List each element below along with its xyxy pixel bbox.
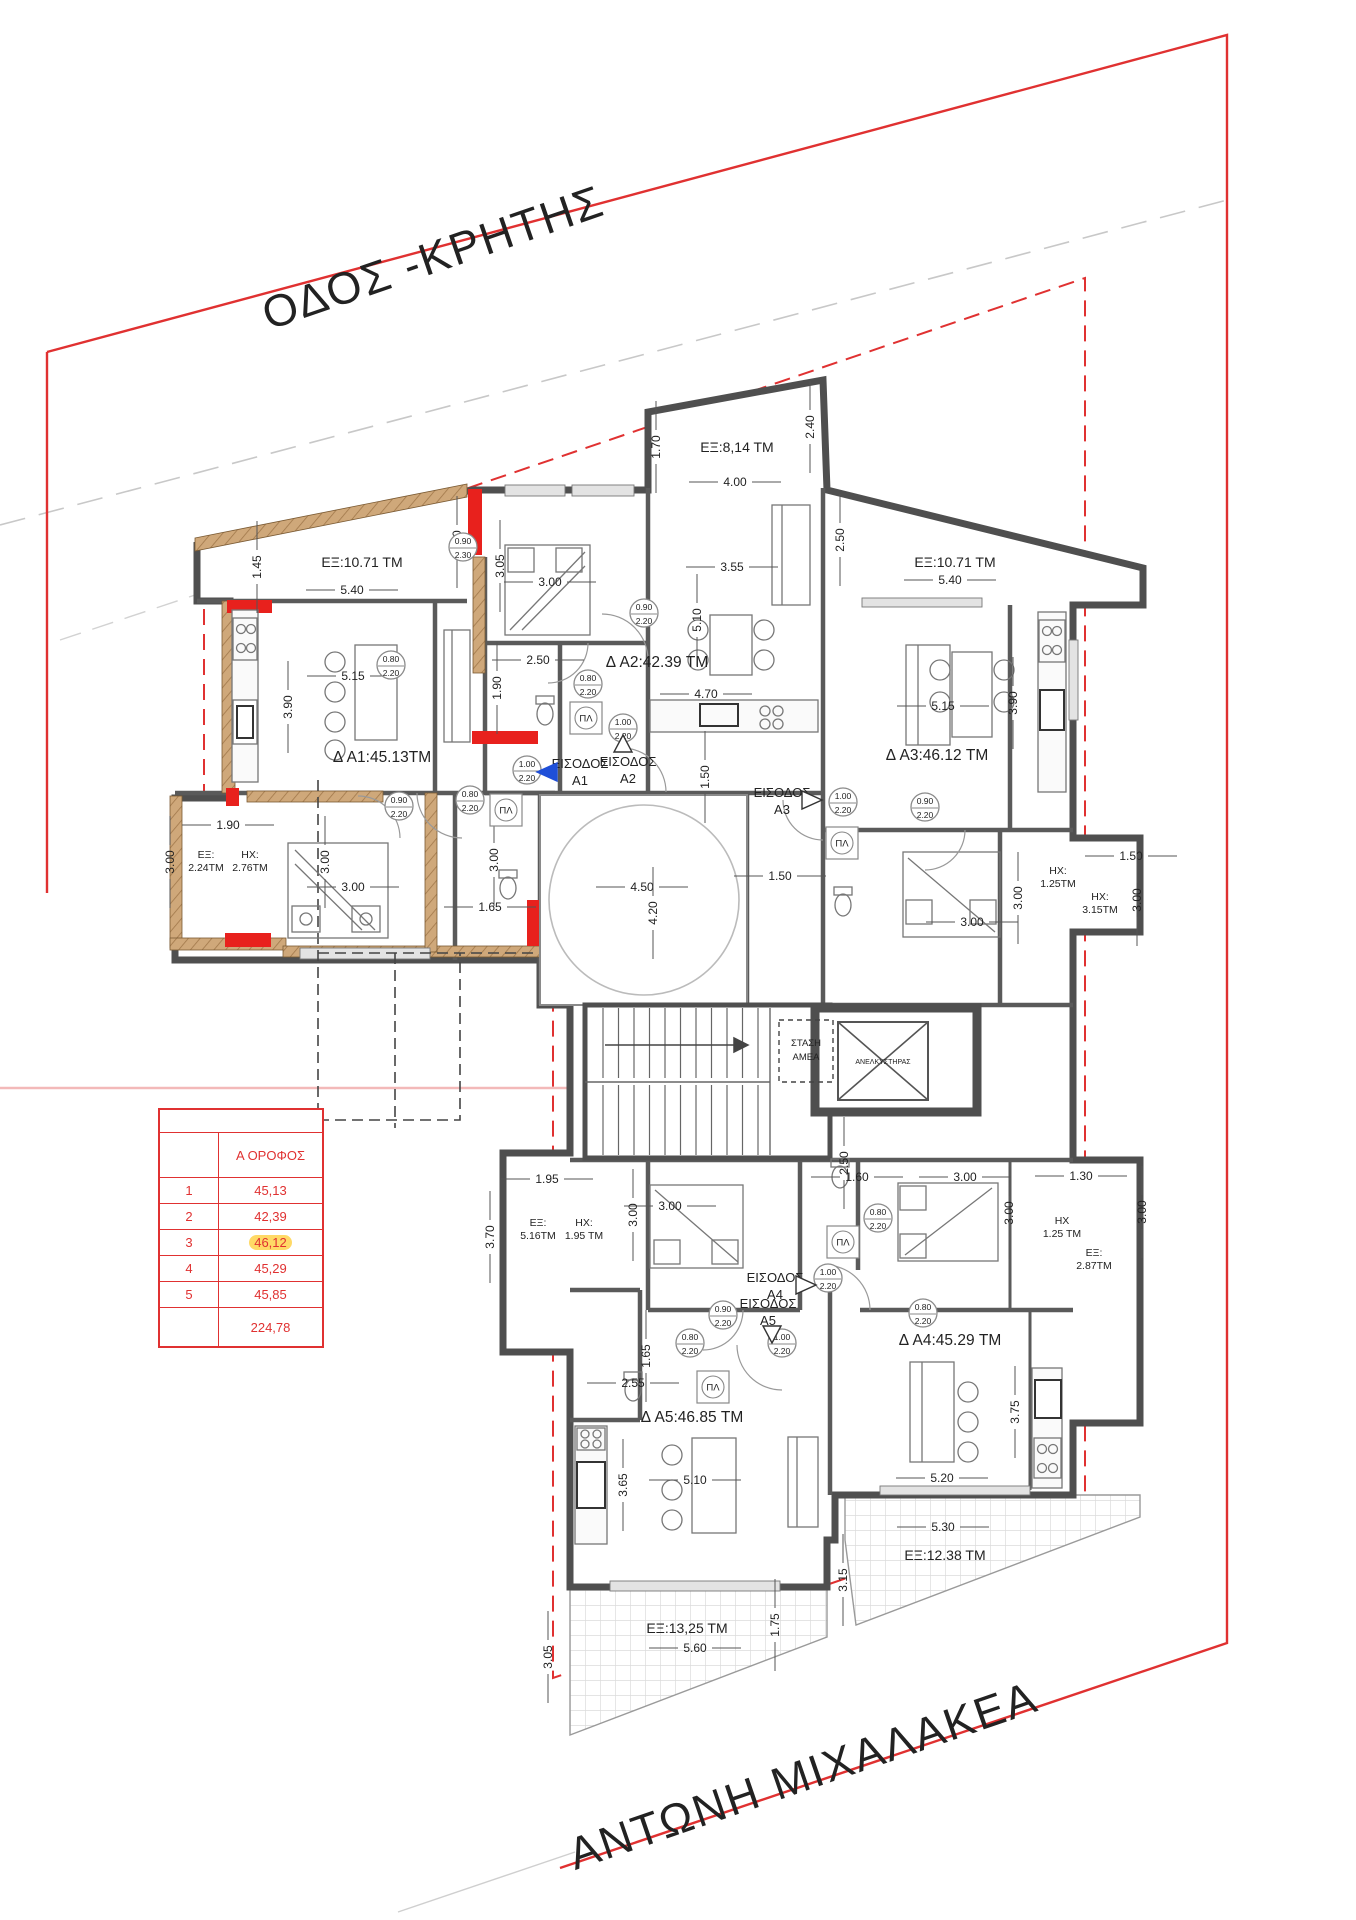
- door-height: 2.20: [774, 1346, 791, 1356]
- area-table-header-row: Α ΟΡΟΦΟΣ: [160, 1132, 322, 1177]
- balcony-area-label: ΕΞ:13,25 ΤΜ: [646, 1620, 727, 1636]
- area-value-highlighted: 46,12: [249, 1235, 292, 1250]
- total-empty-cell: [160, 1308, 218, 1346]
- door-height: 2.20: [820, 1281, 837, 1291]
- dimension-value: 3.00: [1002, 1201, 1016, 1225]
- door-size-tag: 0.802.20: [574, 670, 602, 698]
- dimension-value: 5.10: [683, 1473, 707, 1487]
- apartment-label: Δ A1:45.13ΤΜ: [333, 749, 431, 766]
- dimension-value: 5.15: [341, 669, 365, 683]
- washing-machine-tag: ΠΛ: [826, 827, 858, 859]
- door-height: 2.20: [462, 803, 479, 813]
- row-num: 4: [160, 1256, 218, 1281]
- dimension-value: 3.00: [626, 1203, 640, 1227]
- dimension-value: 1.50: [768, 869, 792, 883]
- dimension-value: 1.45: [250, 555, 264, 579]
- area-label-line2: 1.95 ΤΜ: [565, 1230, 603, 1242]
- dimension-value: 1.90: [216, 818, 240, 832]
- dimension-value: 4.70: [694, 687, 718, 701]
- dimension-value: 5.40: [340, 583, 364, 597]
- dimension: 3.70: [483, 1191, 497, 1283]
- dimension-value: 1.50: [698, 765, 712, 789]
- dimension-value: 3.00: [341, 880, 365, 894]
- door-size-tag: 0.902.20: [385, 792, 413, 820]
- accessible-stop-line2: ΑΜΕΑ: [793, 1052, 821, 1063]
- dimension-value: 3.00: [487, 848, 501, 872]
- dimension-value: 3.05: [541, 1645, 555, 1669]
- door-height: 2.20: [519, 773, 536, 783]
- dimension-value: 3.15: [836, 1568, 850, 1592]
- balcony-area-label: ΕΞ:8,14 ΤΜ: [700, 439, 773, 455]
- door-width: 0.80: [915, 1302, 932, 1312]
- door-size-tag: 0.802.20: [864, 1204, 892, 1232]
- door-size-tag: 0.902.20: [709, 1301, 737, 1329]
- door-height: 2.20: [835, 805, 852, 815]
- dimension-value: 3.00: [960, 915, 984, 929]
- area-label-line2: 2.24ΤΜ: [188, 862, 224, 874]
- dimension-value: 1.50: [1119, 849, 1143, 863]
- row-num: 1: [160, 1178, 218, 1203]
- elevator-label: ΑΝΕΛΚΥΣΤΗΡΑΣ: [855, 1059, 911, 1066]
- dimension-value: 1.65: [478, 900, 502, 914]
- washing-machine-label: ΠΛ: [706, 1383, 720, 1394]
- area-label-line2: 2.87ΤΜ: [1076, 1260, 1112, 1272]
- dimension-value: 3.90: [281, 695, 295, 719]
- door-size-tag: 1.002.20: [513, 756, 541, 784]
- dimension-value: 3.00: [538, 575, 562, 589]
- washing-machine-tag: ΠΛ: [490, 794, 522, 826]
- dimension-value: 4.00: [723, 475, 747, 489]
- dimension-value: 4.20: [646, 901, 660, 925]
- door-width: 0.90: [917, 796, 934, 806]
- area-label-line1: ΗΧ:: [1091, 891, 1109, 903]
- area-label-line1: ΗΧ:: [241, 849, 259, 861]
- door-width: 0.80: [462, 789, 479, 799]
- dimension-value: 3.00: [953, 1170, 977, 1184]
- balcony-ex1325: [570, 1587, 827, 1735]
- door-size-tag: 0.802.20: [456, 786, 484, 814]
- row-num: 3: [160, 1230, 218, 1255]
- door-size-tag: 0.802.20: [676, 1329, 704, 1357]
- door-width: 0.80: [580, 673, 597, 683]
- dimension-value: 1.60: [845, 1170, 869, 1184]
- door-height: 2.20: [915, 1316, 932, 1326]
- dimension-value: 2.50: [526, 653, 550, 667]
- area-label-line2: 1.25 ΤΜ: [1043, 1228, 1081, 1240]
- door-height: 2.20: [870, 1221, 887, 1231]
- door-width: 1.00: [615, 717, 632, 727]
- balcony-area-label: ΕΞ:12.38 ΤΜ: [904, 1547, 985, 1563]
- dimension-value: 3.00: [163, 850, 177, 874]
- washing-machine-label: ΠΛ: [836, 1238, 850, 1249]
- area-label-line1: ΗΧ:: [575, 1217, 593, 1229]
- row-value: 45,13: [218, 1178, 322, 1203]
- dimension-value: 5.15: [931, 699, 955, 713]
- dimension-value: 1.95: [535, 1172, 559, 1186]
- area-table-empty-header: [160, 1110, 322, 1132]
- apartment-label: Δ A2:42.39 ΤΜ: [606, 654, 709, 671]
- door-height: 2.20: [580, 687, 597, 697]
- dimension-value: 2.55: [621, 1376, 645, 1390]
- area-table-corner-cell: [160, 1133, 218, 1177]
- entrance-unit: A2: [620, 771, 636, 786]
- entrance-word: ΕΙΣΟΔΟΣ: [747, 1270, 804, 1285]
- courtyard: [540, 795, 747, 1005]
- door-size-tag: 0.902.30: [449, 533, 477, 561]
- old-lot-line: [0, 200, 1227, 525]
- dimension-value: 3.00: [1130, 888, 1144, 912]
- table-row: 4 45,29: [160, 1255, 322, 1281]
- dimension-value: 5.30: [931, 1520, 955, 1534]
- area-label-line2: 2.76ΤΜ: [232, 862, 268, 874]
- entrance-unit: A3: [774, 802, 790, 817]
- door-width: 0.80: [383, 654, 400, 664]
- dimension-value: 3.55: [720, 560, 744, 574]
- door-height: 2.20: [917, 810, 934, 820]
- door-width: 1.00: [820, 1267, 837, 1277]
- door-height: 2.20: [682, 1346, 699, 1356]
- dimension-value: 1.90: [490, 676, 504, 700]
- dimension-value: 5.40: [938, 573, 962, 587]
- row-num: 2: [160, 1204, 218, 1229]
- apartment-label: Δ A4:45.29 ΤΜ: [899, 1332, 1002, 1349]
- dimension-value: 1.30: [1069, 1169, 1093, 1183]
- area-label-line2: 5.16ΤΜ: [520, 1230, 556, 1242]
- door-size-tag: 0.802.20: [909, 1299, 937, 1327]
- row-value: 45,29: [218, 1256, 322, 1281]
- dimension-value: 3.90: [1006, 691, 1020, 715]
- floor-plan-sheet: 1.704.002.401.455.402.502.505.405.153.90…: [0, 0, 1356, 1920]
- dimension-value: 5.10: [690, 608, 704, 632]
- dimension-value: 3.00: [318, 850, 332, 874]
- row-num: 5: [160, 1282, 218, 1307]
- dimension-value: 3.00: [1135, 1200, 1149, 1224]
- door-height: 2.20: [391, 809, 408, 819]
- balcony-area-label: ΕΞ:10.71 ΤΜ: [321, 554, 402, 570]
- dimension-value: 4.50: [630, 880, 654, 894]
- washing-machine-tag: ΠΛ: [697, 1371, 729, 1403]
- dimension-value: 3.65: [616, 1473, 630, 1497]
- row-value: 46,12: [218, 1230, 322, 1255]
- total-value: 224,78: [218, 1308, 322, 1346]
- area-table: Α ΟΡΟΦΟΣ 1 45,13 2 42,39 3 46,12 4 45,29…: [158, 1108, 324, 1348]
- balcony-area-label: ΕΞ:10.71 ΤΜ: [914, 554, 995, 570]
- apartment-label: Δ A5:46.85 ΤΜ: [641, 1409, 744, 1426]
- area-label-line1: ΕΞ:: [198, 849, 215, 861]
- dimension-value: 3.70: [483, 1225, 497, 1249]
- apartment-label: Δ A3:46.12 ΤΜ: [886, 747, 989, 764]
- area-table-floor-header: Α ΟΡΟΦΟΣ: [218, 1133, 322, 1177]
- door-size-tag: 0.902.20: [630, 599, 658, 627]
- dimension-value: 3.05: [493, 554, 507, 578]
- site-edge-gray: [398, 1852, 575, 1912]
- door-width: 1.00: [835, 791, 852, 801]
- door-width: 0.90: [391, 795, 408, 805]
- door-width: 0.90: [636, 602, 653, 612]
- accessible-stop-line1: ΣΤΑΣΗ: [791, 1038, 821, 1049]
- area-value: 45,29: [254, 1261, 287, 1276]
- dimension-value: 5.20: [930, 1471, 954, 1485]
- area-label-line2: 3.15ΤΜ: [1082, 904, 1118, 916]
- entrance-word: ΕΙΣΟΔΟΣ: [600, 754, 657, 769]
- area-label-line1: ΕΞ:: [530, 1217, 547, 1229]
- washing-machine-label: ΠΛ: [579, 714, 593, 725]
- door-width: 0.90: [455, 536, 472, 546]
- table-row: 1 45,13: [160, 1177, 322, 1203]
- area-label-line2: 1.25ΤΜ: [1040, 878, 1076, 890]
- street-name: ΟΔΟΣ -ΚΡΗΤΗΣ: [255, 175, 610, 340]
- entrance-word: ΕΙΣΟΔΟΣ: [740, 1296, 797, 1311]
- balcony-ex1238: [845, 1495, 1140, 1625]
- door-height: 2.20: [715, 1318, 732, 1328]
- door-height: 2.20: [383, 668, 400, 678]
- table-row: 3 46,12: [160, 1229, 322, 1255]
- area-value: 45,13: [254, 1183, 287, 1198]
- door-height: 2.30: [455, 550, 472, 560]
- door-width: 0.90: [715, 1304, 732, 1314]
- washing-machine-label: ΠΛ: [499, 806, 513, 817]
- area-table-total-row: 224,78: [160, 1307, 322, 1346]
- door-size-tag: 1.002.20: [829, 788, 857, 816]
- dimension-value: 3.00: [1011, 886, 1025, 910]
- row-value: 45,85: [218, 1282, 322, 1307]
- washing-machine-tag: ΠΛ: [570, 702, 602, 734]
- dimension-value: 5.60: [683, 1641, 707, 1655]
- dimension-value: 1.70: [649, 435, 663, 459]
- area-label-line1: ΗΧ:: [1049, 865, 1067, 877]
- dimension-value: 1.75: [768, 1613, 782, 1637]
- door-size-tag: 0.902.20: [911, 793, 939, 821]
- washing-machine-tag: ΠΛ: [827, 1226, 859, 1258]
- dimension-value: 3.00: [658, 1199, 682, 1213]
- dimension-value: 3.75: [1008, 1400, 1022, 1424]
- door-size-tag: 1.002.20: [814, 1264, 842, 1292]
- door-width: 0.80: [870, 1207, 887, 1217]
- area-label-line1: ΕΞ:: [1086, 1247, 1103, 1259]
- washing-machine-label: ΠΛ: [835, 839, 849, 850]
- door-size-tag: 0.802.20: [377, 651, 405, 679]
- floor-plan-drawing: 1.704.002.401.455.402.502.505.405.153.90…: [0, 0, 1356, 1920]
- dimension-value: 2.50: [833, 528, 847, 552]
- area-value: 42,39: [254, 1209, 287, 1224]
- entrance-unit: A1: [572, 773, 588, 788]
- door-height: 2.20: [636, 616, 653, 626]
- door-width: 1.00: [519, 759, 536, 769]
- dimension-value: 1.65: [639, 1344, 653, 1368]
- table-row: 2 42,39: [160, 1203, 322, 1229]
- area-label-line1: ΗΧ: [1055, 1215, 1070, 1227]
- row-value: 42,39: [218, 1204, 322, 1229]
- table-row: 5 45,85: [160, 1281, 322, 1307]
- area-value: 45,85: [254, 1287, 287, 1302]
- door-width: 0.80: [682, 1332, 699, 1342]
- dimension-value: 2.40: [803, 415, 817, 439]
